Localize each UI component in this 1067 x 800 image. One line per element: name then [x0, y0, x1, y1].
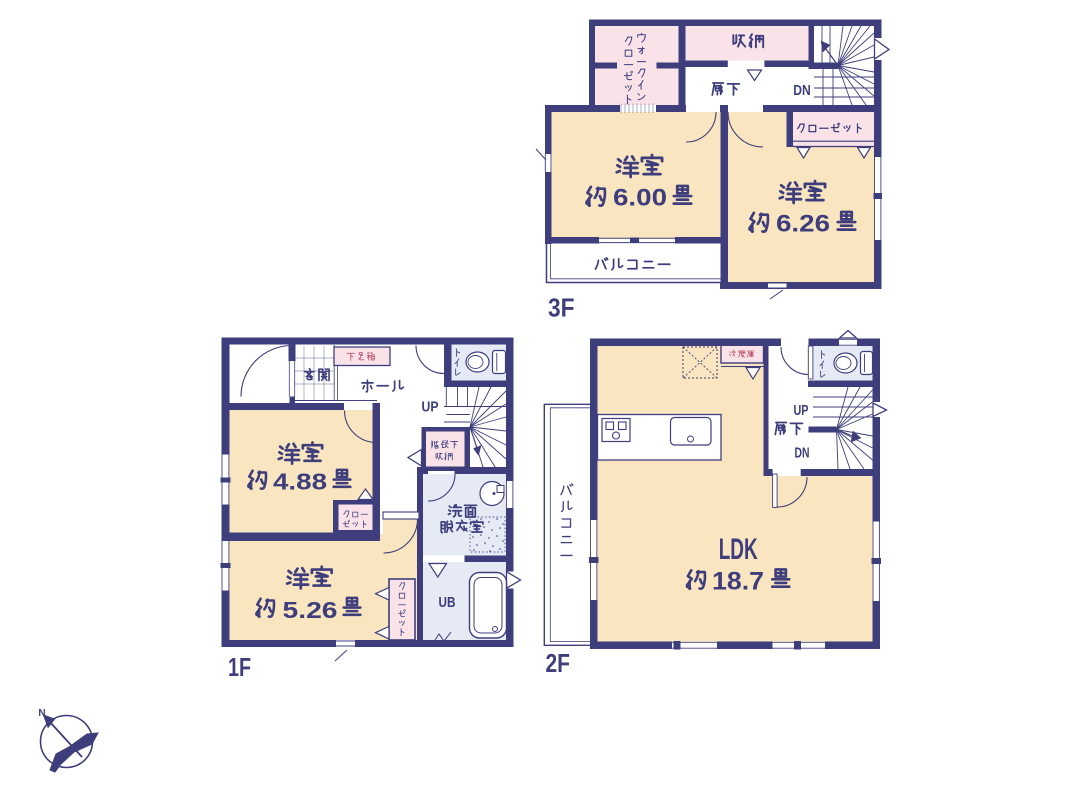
svg-text:DN: DN — [795, 446, 810, 462]
svg-text:6.26: 6.26 — [776, 211, 830, 238]
svg-text:N: N — [38, 708, 45, 719]
svg-text:1F: 1F — [228, 652, 251, 682]
svg-text:5.26: 5.26 — [283, 597, 338, 623]
svg-text:6.00: 6.00 — [613, 185, 667, 212]
svg-text:UP: UP — [794, 403, 809, 419]
svg-text:LDK: LDK — [719, 533, 758, 566]
svg-text:2F: 2F — [546, 648, 571, 678]
svg-text:4.88: 4.88 — [273, 469, 327, 495]
svg-text:UP: UP — [422, 399, 439, 416]
svg-text:3F: 3F — [548, 293, 575, 323]
svg-text:18.7: 18.7 — [712, 568, 764, 596]
svg-text:DN: DN — [793, 82, 811, 99]
svg-text:UB: UB — [439, 594, 456, 611]
